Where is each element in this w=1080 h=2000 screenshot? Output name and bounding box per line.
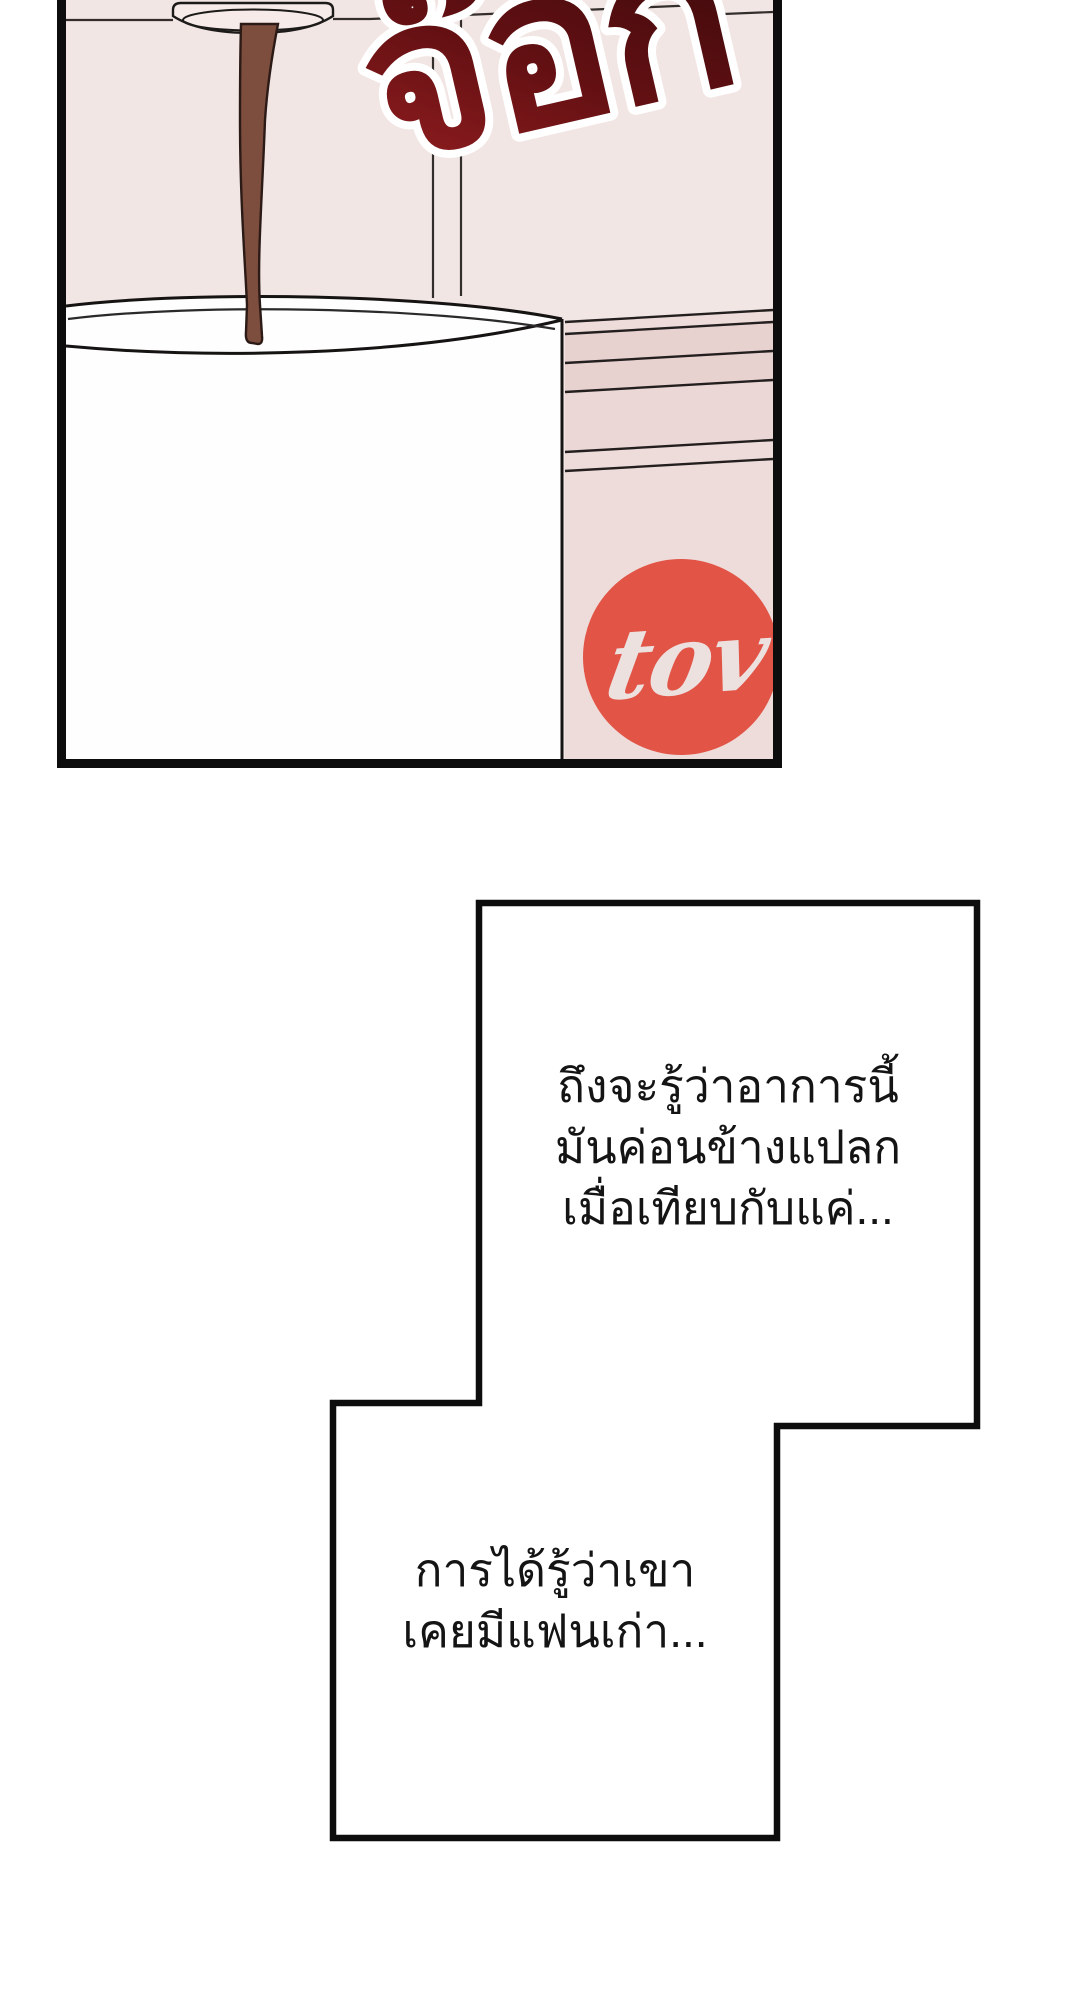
narration-line: การได้รู้ว่าเขา	[333, 1540, 777, 1601]
narration-boxes-outline	[333, 903, 977, 1838]
narration-line: เคยมีแฟนเก่า...	[333, 1601, 777, 1662]
narration-box-1-text: ถึงจะรู้ว่าอาการนี้ มันค่อนข้างแปลก เมื่…	[479, 1056, 977, 1239]
narration-line: เมื่อเทียบกับแค่...	[479, 1178, 977, 1239]
narration-line: ถึงจะรู้ว่าอาการนี้	[479, 1056, 977, 1117]
comic-page: tov จ๊อก	[0, 0, 1080, 2000]
narration-box-2-text: การได้รู้ว่าเขา เคยมีแฟนเก่า...	[333, 1540, 777, 1662]
narration-boxes	[0, 0, 1080, 2000]
narration-line: มันค่อนข้างแปลก	[479, 1117, 977, 1178]
